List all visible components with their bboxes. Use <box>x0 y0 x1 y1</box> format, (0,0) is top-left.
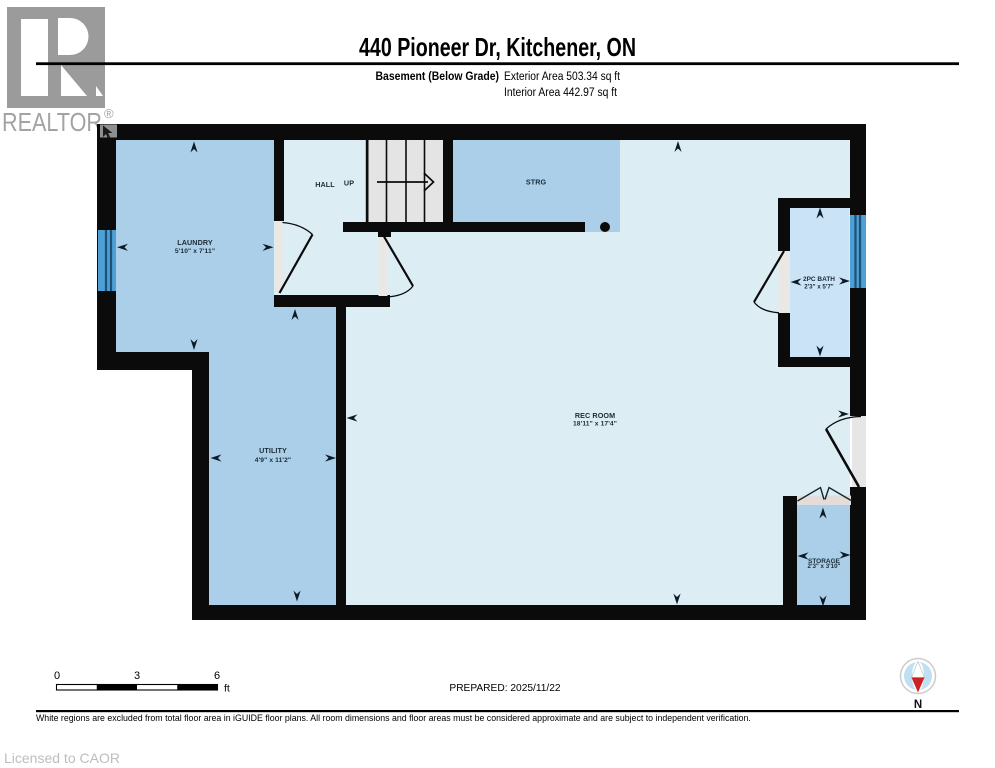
svg-text:N: N <box>914 699 922 711</box>
svg-text:0: 0 <box>54 670 60 682</box>
svg-text:6: 6 <box>214 670 220 682</box>
svg-text:2PC BATH: 2PC BATH <box>803 276 835 283</box>
svg-text:3: 3 <box>134 670 140 682</box>
svg-text:STRG: STRG <box>526 178 547 187</box>
svg-text:UTILITY: UTILITY <box>259 446 287 455</box>
svg-text:HALL: HALL <box>315 180 335 189</box>
svg-text:440 Pioneer Dr, Kitchener, ON: 440 Pioneer Dr, Kitchener, ON <box>359 32 636 62</box>
svg-text:REC ROOM: REC ROOM <box>575 411 615 420</box>
svg-text:White regions are excluded fro: White regions are excluded from total fl… <box>36 713 751 723</box>
svg-text:Exterior Area 503.34 sq ft: Exterior Area 503.34 sq ft <box>504 71 621 83</box>
svg-text:PREPARED: 2025/11/22: PREPARED: 2025/11/22 <box>449 683 561 694</box>
svg-text:Licensed to CAOR: Licensed to CAOR <box>4 750 120 766</box>
svg-text:REALTOR: REALTOR <box>2 107 102 137</box>
svg-text:ft: ft <box>224 683 230 695</box>
svg-text:LAUNDRY: LAUNDRY <box>177 238 213 247</box>
svg-text:2'3" x 5'7": 2'3" x 5'7" <box>804 284 834 291</box>
svg-text:UP: UP <box>344 179 354 188</box>
svg-text:5'10" x 7'11": 5'10" x 7'11" <box>175 248 215 255</box>
svg-text:Interior Area 442.97 sq ft: Interior Area 442.97 sq ft <box>504 87 618 99</box>
svg-text:2'3" x 3'10": 2'3" x 3'10" <box>808 563 841 570</box>
svg-text:Basement (Below Grade): Basement (Below Grade) <box>376 71 500 83</box>
svg-text:®: ® <box>104 106 114 121</box>
svg-text:18'11" x 17'4": 18'11" x 17'4" <box>573 421 617 428</box>
svg-text:4'9" x 11'2": 4'9" x 11'2" <box>255 457 291 464</box>
